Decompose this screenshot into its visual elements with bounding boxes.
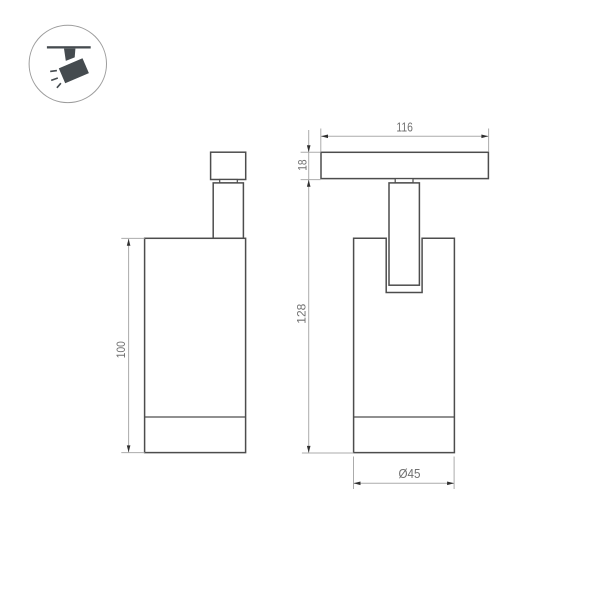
svg-text:116: 116 bbox=[396, 120, 413, 135]
svg-text:100: 100 bbox=[114, 341, 128, 358]
svg-text:18: 18 bbox=[295, 159, 309, 170]
svg-text:128: 128 bbox=[294, 304, 308, 324]
svg-text:Ø45: Ø45 bbox=[399, 466, 421, 481]
